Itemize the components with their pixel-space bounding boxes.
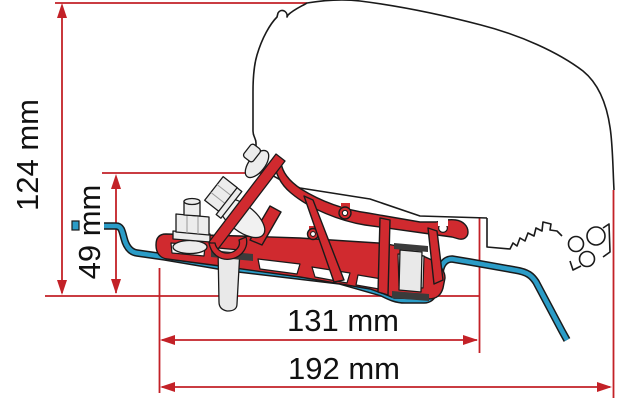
roof-outline — [307, 0, 614, 190]
diagram-canvas: 124 mm 49 mm 131 mm 192 mm — [0, 0, 640, 400]
left-bolt-stack — [173, 199, 210, 254]
seal-roll-1 — [569, 237, 584, 252]
door-frame-steps — [487, 218, 562, 249]
seal-roll-2 — [587, 227, 605, 245]
seal-hook-bottom — [570, 261, 581, 270]
label-bracket-height: 49 mm — [72, 185, 107, 280]
seal-roll-3 — [580, 252, 595, 267]
label-overall-width: 192 mm — [288, 351, 400, 386]
label-bracket-width: 131 mm — [287, 303, 399, 338]
diagram-stage: 124 mm 49 mm 131 mm 192 mm — [0, 0, 640, 400]
cab-left-outline — [253, 3, 307, 169]
hex-nut — [176, 214, 209, 235]
dome-washer — [173, 241, 207, 254]
label-overall-height: 124 mm — [10, 99, 45, 211]
foot-bolt-shaft — [399, 250, 422, 292]
dimension-lines — [45, 3, 614, 398]
